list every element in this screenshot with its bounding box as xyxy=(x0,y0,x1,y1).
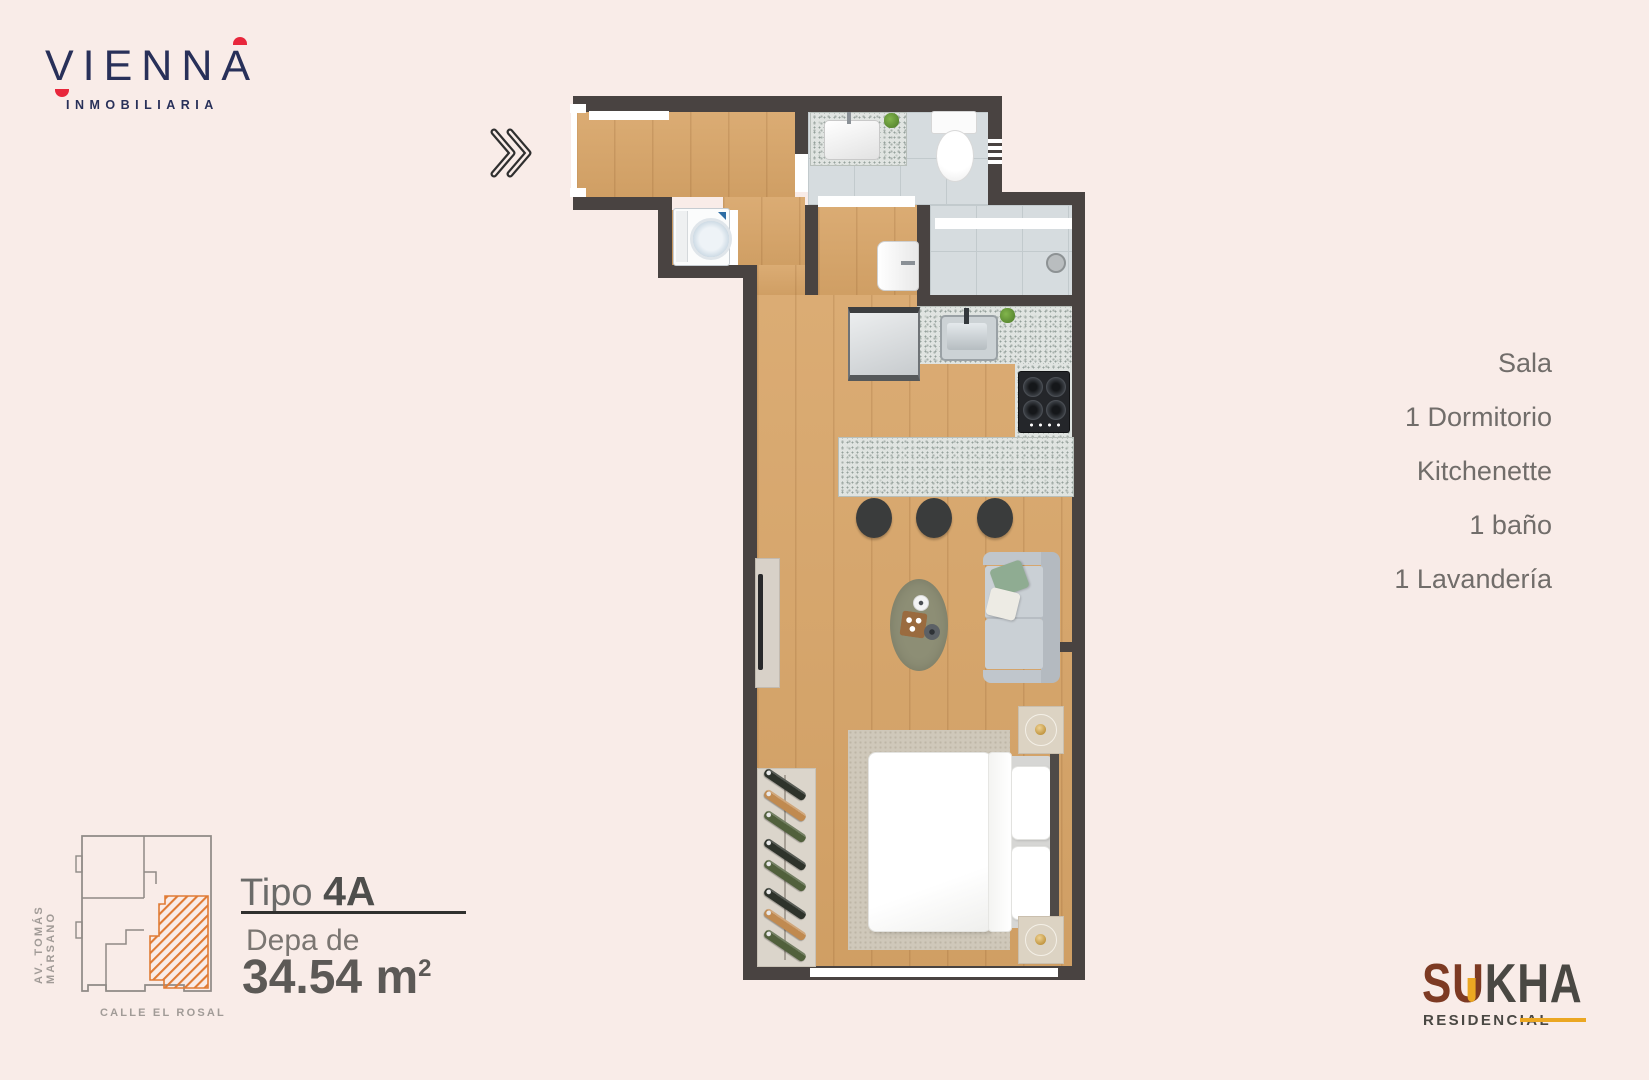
bar-stool xyxy=(916,498,952,538)
wall-bath-divider xyxy=(795,110,808,154)
bed-duvet xyxy=(868,752,992,932)
powder-room-basin xyxy=(877,241,919,291)
street-label-bottom: CALLE EL ROSAL xyxy=(100,1007,226,1019)
feature-item: 1 Dormitorio xyxy=(1180,390,1552,444)
shower-glass-panel xyxy=(935,218,1072,229)
vienna-logo-red-accent-icon xyxy=(55,89,69,97)
lamp-icon xyxy=(1035,934,1046,945)
vienna-logo-tagline: INMOBILIARIA xyxy=(66,98,219,112)
kitchen-island xyxy=(838,437,1074,497)
refrigerator xyxy=(848,307,920,381)
hall-floor xyxy=(757,265,805,295)
wall-powder-left xyxy=(805,205,818,295)
shower-drain-icon xyxy=(1046,253,1066,273)
floor-plan xyxy=(545,88,1085,980)
plant-icon xyxy=(1000,308,1015,323)
brochure-page: VIENNA INMOBILIARIA xyxy=(0,0,1649,1080)
cup xyxy=(924,624,940,640)
tv-screen xyxy=(758,574,763,670)
kitchen-sink xyxy=(940,315,998,361)
sukha-logo: SUKHA RESIDENCIAL xyxy=(1422,956,1622,1036)
entry-threshold xyxy=(571,113,577,188)
double-chevron-right-icon[interactable] xyxy=(486,124,534,182)
entry-door-jamb xyxy=(570,188,586,197)
bathroom-door xyxy=(795,154,808,192)
burner-icon xyxy=(1046,377,1066,397)
vienna-logo-red-accent-icon xyxy=(233,37,247,45)
wall-step-top-right xyxy=(988,192,1085,205)
cup xyxy=(913,595,929,611)
bedroom-window xyxy=(810,968,1058,977)
vanity-faucet xyxy=(847,112,851,124)
building-outline xyxy=(76,856,82,872)
title-underline xyxy=(241,911,466,914)
area-value: 34.54 m2 xyxy=(242,950,432,1005)
stove-knobs xyxy=(1027,423,1061,427)
vienna-logo: VIENNA INMOBILIARIA xyxy=(45,40,285,120)
building-outline xyxy=(76,922,82,938)
entry-door-jamb xyxy=(570,104,586,113)
street-label-left: AV. TOMÁS MARSANO xyxy=(33,848,57,984)
vent-grille-icon xyxy=(988,136,1002,166)
sukha-wordmark: SUKHA xyxy=(1422,956,1582,1011)
feature-item: 1 Lavandería xyxy=(1180,552,1552,606)
vienna-logo-wordmark: VIENNA xyxy=(45,40,259,92)
area-superscript: 2 xyxy=(418,955,431,982)
unit-location-highlight xyxy=(150,896,208,988)
washing-machine xyxy=(673,208,730,266)
feature-list: Sala 1 Dormitorio Kitchenette 1 baño 1 L… xyxy=(1180,336,1552,606)
interior-walls xyxy=(82,836,156,990)
wall-top xyxy=(573,96,988,112)
bed-pillow xyxy=(1011,846,1051,920)
sink-basin xyxy=(947,323,987,350)
nightstand xyxy=(1018,916,1064,964)
entry-door-leaf xyxy=(589,111,669,120)
bar-stool xyxy=(856,498,892,538)
stove-cooktop xyxy=(1018,371,1070,433)
feature-item: 1 baño xyxy=(1180,498,1552,552)
feature-item: Sala xyxy=(1180,336,1552,390)
unit-type-label: Tipo xyxy=(240,872,313,914)
sink-faucet xyxy=(964,308,969,324)
vanity-sink xyxy=(824,120,880,160)
unit-type-value: 4A xyxy=(323,868,375,914)
washer-door xyxy=(690,218,732,260)
sukha-gold-underline xyxy=(1520,1018,1586,1022)
sukha-gold-accent-icon xyxy=(1468,978,1476,1002)
nightstand xyxy=(1018,706,1064,754)
bed-headboard xyxy=(1050,752,1059,930)
bar-stool xyxy=(977,498,1013,538)
powder-room-door xyxy=(818,196,915,207)
toilet-bowl xyxy=(936,130,974,182)
plant-icon xyxy=(884,113,899,128)
sofa-backrest xyxy=(1041,552,1060,683)
unit-type-title: Tipo 4A xyxy=(240,868,376,915)
bed-blanket-fold xyxy=(988,752,1012,932)
sofa-arm xyxy=(983,670,1041,683)
washer-control-panel xyxy=(676,211,688,262)
burner-icon xyxy=(1046,400,1066,420)
sofa xyxy=(983,552,1060,683)
sukha-word-kha: KHA xyxy=(1485,952,1583,1014)
area-number: 34.54 m xyxy=(242,951,418,1004)
site-plan-svg xyxy=(68,826,226,1002)
wall-right xyxy=(1072,192,1085,980)
basin-faucet xyxy=(901,261,915,265)
entry-corridor-floor xyxy=(576,112,795,197)
lamp-icon xyxy=(1035,724,1046,735)
feature-item: Kitchenette xyxy=(1180,444,1552,498)
bed-pillow xyxy=(1011,766,1051,840)
sofa-cushion xyxy=(985,619,1043,669)
burner-icon xyxy=(1023,377,1043,397)
burner-icon xyxy=(1023,400,1043,420)
